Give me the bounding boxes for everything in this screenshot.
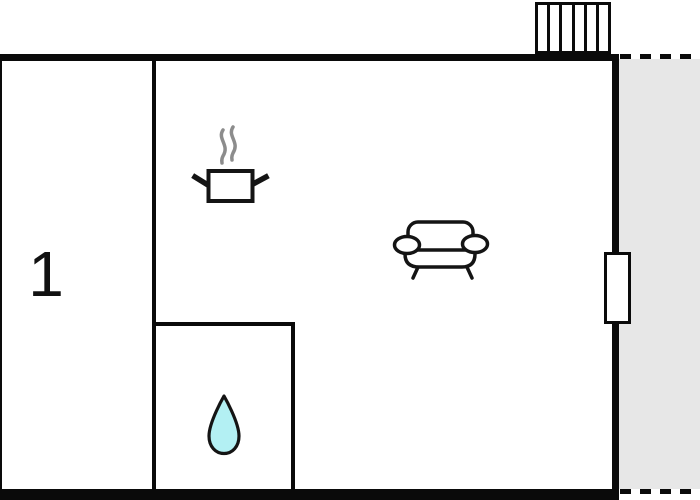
water-drop-icon (205, 393, 243, 457)
pot-handle-right (253, 177, 266, 184)
water-drop-shape (209, 396, 239, 454)
radiator-icon (535, 2, 611, 54)
radiator-cell (587, 5, 596, 51)
floor-plan: 1 (0, 0, 700, 500)
terrace-area (619, 59, 700, 489)
radiator-cell (599, 5, 608, 51)
pot-body (209, 171, 253, 201)
sofa-armrest-left (395, 237, 420, 254)
terrace-dashed-border-top (620, 54, 700, 59)
radiator-cell (562, 5, 571, 51)
wall-interior-vertical (152, 61, 156, 489)
wall-left (0, 54, 2, 500)
room-1-label: 1 (16, 242, 76, 306)
radiator-cell (550, 5, 559, 51)
radiator-cell (538, 5, 547, 51)
wall-top (0, 54, 619, 61)
wall-bottom (0, 489, 619, 500)
cooking-pot-icon (190, 122, 272, 206)
wall-bathroom-top (152, 322, 295, 326)
steam-icon (231, 127, 235, 160)
window-marker (604, 252, 631, 324)
sofa-armrest-right (463, 236, 488, 253)
radiator-cell (575, 5, 584, 51)
wall-bathroom-right (291, 322, 295, 489)
sofa-icon (391, 218, 491, 282)
terrace-dashed-border-bottom (620, 489, 700, 494)
steam-icon (221, 130, 225, 163)
pot-handle-left (195, 177, 208, 185)
